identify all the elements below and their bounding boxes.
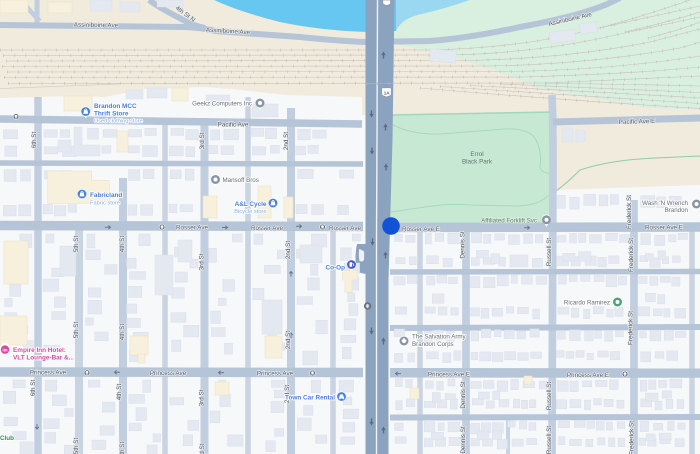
svg-text:Russell St: Russell St <box>546 382 553 411</box>
svg-text:The Salvation Army: The Salvation Army <box>412 334 467 341</box>
svg-text:Black Park: Black Park <box>462 159 493 166</box>
svg-text:3rd St: 3rd St <box>199 132 206 149</box>
svg-text:3rd St: 3rd St <box>199 253 206 270</box>
svg-text:Frederick St: Frederick St <box>626 195 633 229</box>
svg-text:Dennis St: Dennis St <box>460 426 467 454</box>
svg-text:2nd St: 2nd St <box>285 331 292 349</box>
svg-text:Mansoff Bros: Mansoff Bros <box>223 177 259 184</box>
svg-text:3rd St: 3rd St <box>199 443 206 454</box>
svg-text:Empire Inn Hotel:: Empire Inn Hotel: <box>13 347 66 354</box>
svg-text:Used clothing store: Used clothing store <box>94 119 143 125</box>
svg-text:6th St: 6th St <box>30 380 37 397</box>
svg-text:3rd St: 3rd St <box>199 389 206 406</box>
svg-text:Bicycle store: Bicycle store <box>234 209 266 215</box>
svg-text:Brandon: Brandon <box>665 207 689 214</box>
svg-text:Frederick St: Frederick St <box>628 238 635 272</box>
svg-text:A&L Cycle: A&L Cycle <box>235 201 267 208</box>
svg-text:Errol: Errol <box>470 151 483 158</box>
svg-text:4th St: 4th St <box>119 442 126 454</box>
svg-text:Fabric store: Fabric store <box>90 201 120 207</box>
svg-text:Club: Club <box>0 435 14 442</box>
svg-text:Fabricland: Fabricland <box>90 192 122 199</box>
svg-text:Geekz Computers Inc: Geekz Computers Inc <box>192 101 252 108</box>
svg-text:Rosser Ave: Rosser Ave <box>251 225 284 232</box>
svg-text:4th St: 4th St <box>119 324 126 341</box>
svg-text:2nd St: 2nd St <box>283 132 290 150</box>
svg-text:2nd St: 2nd St <box>285 241 292 259</box>
svg-text:Princess Ave E: Princess Ave E <box>567 372 609 379</box>
svg-text:Affiliated Forklift Svc: Affiliated Forklift Svc <box>481 218 537 225</box>
svg-text:Pacific Ave E: Pacific Ave E <box>619 118 656 126</box>
svg-text:Rosser Ave: Rosser Ave <box>329 225 362 232</box>
svg-text:Frederick St: Frederick St <box>629 421 636 454</box>
svg-text:Brandon Corps: Brandon Corps <box>412 341 454 348</box>
svg-text:Pacific Ave: Pacific Ave <box>218 122 249 129</box>
svg-text:Town Car Rental: Town Car Rental <box>285 395 335 402</box>
svg-text:Co-Op: Co-Op <box>325 265 345 272</box>
svg-text:Thrift Store: Thrift Store <box>94 111 129 118</box>
svg-text:Dennis St: Dennis St <box>460 381 467 409</box>
svg-text:Brandon MCC: Brandon MCC <box>94 103 137 110</box>
svg-text:Rosser Ave: Rosser Ave <box>176 225 209 232</box>
svg-text:5th St: 5th St <box>73 438 80 454</box>
svg-text:Princess Ave E: Princess Ave E <box>428 372 470 379</box>
svg-text:VLT Lounge-Bar &...: VLT Lounge-Bar &... <box>13 354 74 361</box>
svg-text:5th St: 5th St <box>73 322 80 339</box>
svg-text:Rosser Ave E: Rosser Ave E <box>402 226 440 233</box>
svg-text:4th St: 4th St <box>119 236 126 253</box>
svg-text:Russell St: Russell St <box>546 426 553 454</box>
svg-text:im: im <box>3 348 8 353</box>
svg-text:Frederick St: Frederick St <box>628 311 635 345</box>
svg-text:5th St: 5th St <box>73 236 80 253</box>
svg-text:Rosser Ave E: Rosser Ave E <box>645 225 683 232</box>
svg-text:Princess Ave: Princess Ave <box>257 370 294 377</box>
svg-text:4th St: 4th St <box>116 384 123 401</box>
svg-text:Princess Ave: Princess Ave <box>150 370 187 377</box>
svg-text:Dennis St: Dennis St <box>460 231 467 259</box>
svg-text:6th St: 6th St <box>31 132 38 149</box>
svg-text:Russell St: Russell St <box>546 238 553 267</box>
svg-text:Ricardo Ramirez: Ricardo Ramirez <box>564 300 610 307</box>
svg-text:Princess Ave: Princess Ave <box>30 370 67 377</box>
svg-text:Assiniboine Ave: Assiniboine Ave <box>74 22 119 30</box>
svg-text:Wash 'N Wrench: Wash 'N Wrench <box>642 200 688 207</box>
svg-text:1A: 1A <box>384 90 391 95</box>
